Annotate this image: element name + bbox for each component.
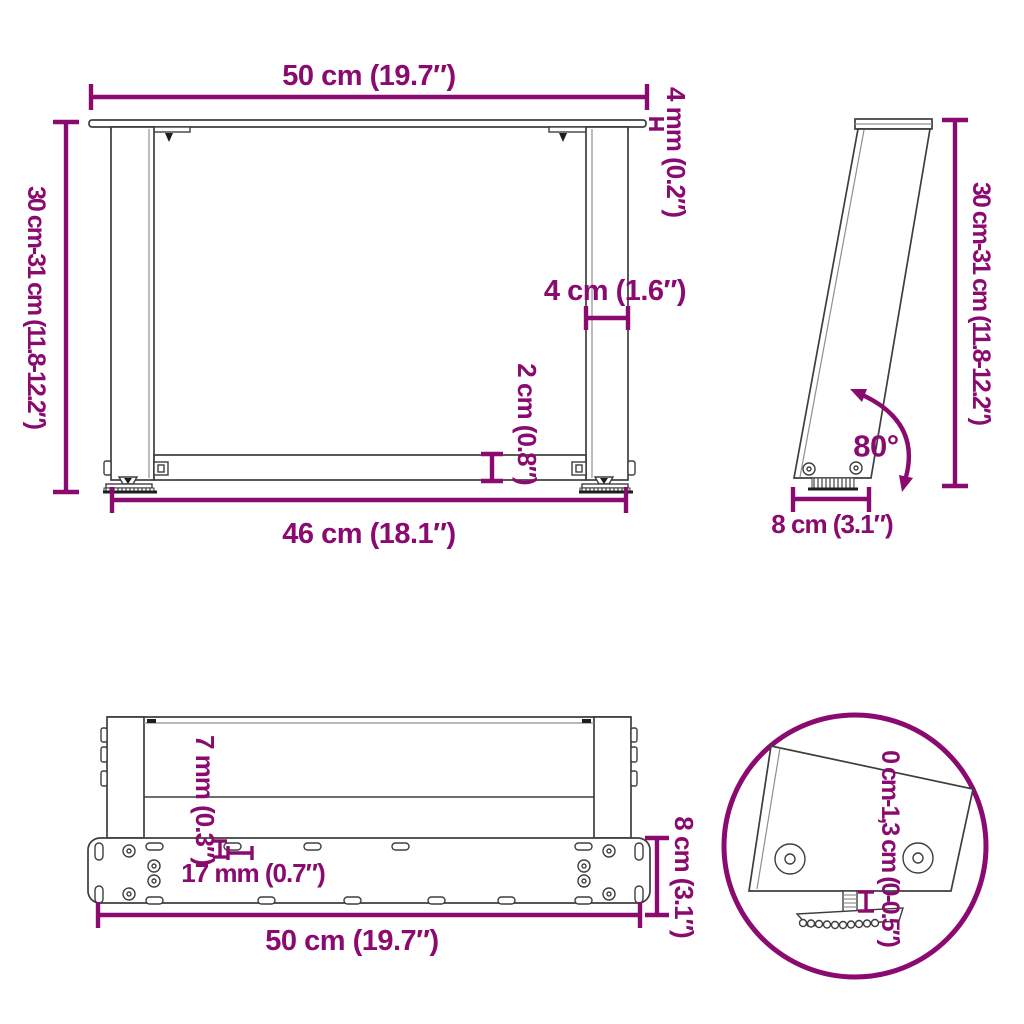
front-bottom-width-label: 46 cm (18.1″) <box>282 518 455 550</box>
plate-hole-center <box>127 849 131 853</box>
dim-side-depth: 8 cm (3.1″) <box>771 487 893 539</box>
plate-slot <box>95 843 103 860</box>
top-plate-width-label: 50 cm (19.7″) <box>265 925 438 957</box>
thread-icon <box>816 921 823 928</box>
dim-hole-width: 7 mm (0.3″) <box>190 735 227 865</box>
plate-hole-center <box>582 864 586 868</box>
weld-mark <box>582 719 591 723</box>
screw-center <box>785 854 795 864</box>
plate-slot <box>146 843 163 850</box>
dim-plate-width: 50 cm (19.7″) <box>98 902 640 957</box>
front-top-width-label: 50 cm (19.7″) <box>282 60 455 92</box>
plate-hole-center <box>607 892 611 896</box>
crossbar-clip-hole <box>576 465 582 472</box>
leg-side-tab <box>101 728 107 742</box>
thread-icon <box>832 922 839 929</box>
slanted-leg <box>794 129 930 478</box>
screw-icon <box>165 133 173 142</box>
plate-slot <box>95 886 103 903</box>
plate-hole-center <box>152 879 156 883</box>
weld-mark <box>147 719 156 723</box>
thread-icon <box>808 920 815 927</box>
top-plate-depth-label: 8 cm (3.1″) <box>669 816 699 938</box>
dim-top-width: 50 cm (19.7″) <box>91 60 647 110</box>
side-angle-label: 80° <box>853 429 898 464</box>
tabletop-plate <box>89 120 646 127</box>
screw-center <box>807 467 811 471</box>
threaded-rod <box>843 891 857 912</box>
foot-plate <box>582 484 628 488</box>
plate-slot <box>392 843 409 850</box>
left-leg-top <box>107 717 144 838</box>
dim-bottom-width: 46 cm (18.1″) <box>112 487 626 550</box>
plate-slot <box>344 897 361 904</box>
front-crossbar-height-label: 2 cm (0.8″) <box>512 363 542 485</box>
dim-top-thickness: 4 mm (0.2″) <box>649 87 691 217</box>
plate-hole-center <box>607 849 611 853</box>
right-leg-top <box>594 717 631 838</box>
plate-slot <box>428 897 445 904</box>
dim-height: 30 cm-31 cm (11.8-12.2″) <box>22 122 79 492</box>
leg-side-tab <box>101 747 107 762</box>
thread-icon <box>848 921 855 928</box>
plate-slot <box>575 897 592 904</box>
plate-hole-center <box>152 864 156 868</box>
front-leg-width-label: 4 cm (1.6″) <box>544 275 686 307</box>
leg-side-tab <box>631 728 637 742</box>
screw-center <box>913 853 923 863</box>
top-hole-length-label: 17 mm (0.7″) <box>181 858 325 888</box>
leg-side-tab <box>104 461 111 475</box>
top-hole-width-label: 7 mm (0.3″) <box>190 735 220 865</box>
foot-pad <box>812 478 854 488</box>
dim-side-height: 30 cm-31 cm (11.8-12.2″) <box>942 120 995 486</box>
product-dimension-diagram: 50 cm (19.7″) 4 mm (0.2″) 30 cm-31 cm (1… <box>0 0 1024 1024</box>
screw-center <box>854 466 858 470</box>
side-height-label: 30 cm-31 cm (11.8-12.2″) <box>967 182 995 426</box>
plate-slot <box>304 843 321 850</box>
screw-icon <box>559 133 567 142</box>
thread-icon <box>800 920 807 927</box>
thread-icon <box>856 921 863 928</box>
plate-slot <box>258 897 275 904</box>
plate-slot <box>575 843 592 850</box>
top-view: 7 mm (0.3″) 17 mm (0.7″) 8 cm (3.1″) 50 … <box>88 717 699 957</box>
mounting-plate <box>88 838 650 903</box>
leg-side-tab <box>631 747 637 762</box>
plate-slot <box>635 886 643 903</box>
front-view: 50 cm (19.7″) 4 mm (0.2″) 30 cm-31 cm (1… <box>22 60 691 550</box>
detail-view: 0 cm-1,3 cm (0-0.5″) <box>724 715 986 977</box>
thread-icon <box>824 921 831 928</box>
thread-icon <box>840 922 847 929</box>
side-view: 30 cm-31 cm (11.8-12.2″) 80° 8 cm (3.1″) <box>771 119 995 539</box>
leg-side-tab <box>101 771 107 786</box>
thread-icon <box>864 920 871 927</box>
plate-slot <box>498 897 515 904</box>
plate-slot <box>146 897 163 904</box>
side-depth-label: 8 cm (3.1″) <box>771 509 893 539</box>
crossbar-clip-hole <box>158 465 164 472</box>
front-top-thickness-label: 4 mm (0.2″) <box>661 87 691 217</box>
plate-hole-center <box>127 892 131 896</box>
dim-plate-depth: 8 cm (3.1″) <box>645 816 699 938</box>
plate-hole-center <box>582 879 586 883</box>
detail-range-label: 0 cm-1,3 cm (0-0.5″) <box>876 750 904 947</box>
leg-side-tab <box>631 771 637 786</box>
arrowhead-icon <box>899 475 913 492</box>
left-leg <box>111 127 154 480</box>
diagram-canvas: 50 cm (19.7″) 4 mm (0.2″) 30 cm-31 cm (1… <box>0 0 1024 1024</box>
leg-side-tab <box>628 461 635 475</box>
front-height-label: 30 cm-31 cm (11.8-12.2″) <box>22 186 50 430</box>
plate-slot <box>635 843 643 860</box>
